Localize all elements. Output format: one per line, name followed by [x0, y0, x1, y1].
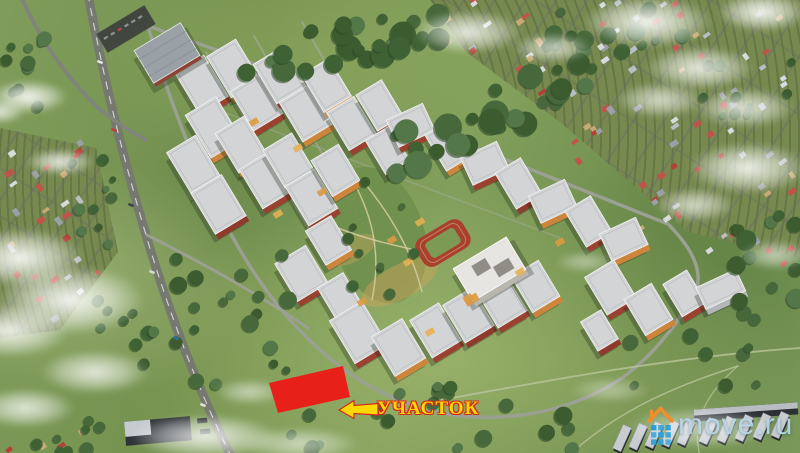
logo-pixel: [665, 425, 670, 430]
watermark: move.ru: [641, 399, 800, 451]
logo-pixel: [651, 432, 656, 437]
aerial-render-image: УЧАСТОК move.ru: [0, 0, 800, 453]
logo-pixel: [665, 432, 670, 437]
logo-pixel: [651, 439, 656, 444]
logo-pixel: [658, 432, 663, 437]
plot-label: УЧАСТОК: [377, 398, 479, 420]
left-arrow-icon: [339, 401, 378, 419]
move-ru-house-logo-icon: [641, 399, 677, 451]
watermark-text: move.ru: [678, 408, 793, 442]
plot-highlight: [269, 366, 350, 413]
logo-pixel: [665, 439, 670, 444]
logo-pixel: [658, 425, 663, 430]
logo-pixel: [658, 439, 663, 444]
logo-pixel: [651, 425, 656, 430]
annotation-layer: [0, 0, 800, 453]
